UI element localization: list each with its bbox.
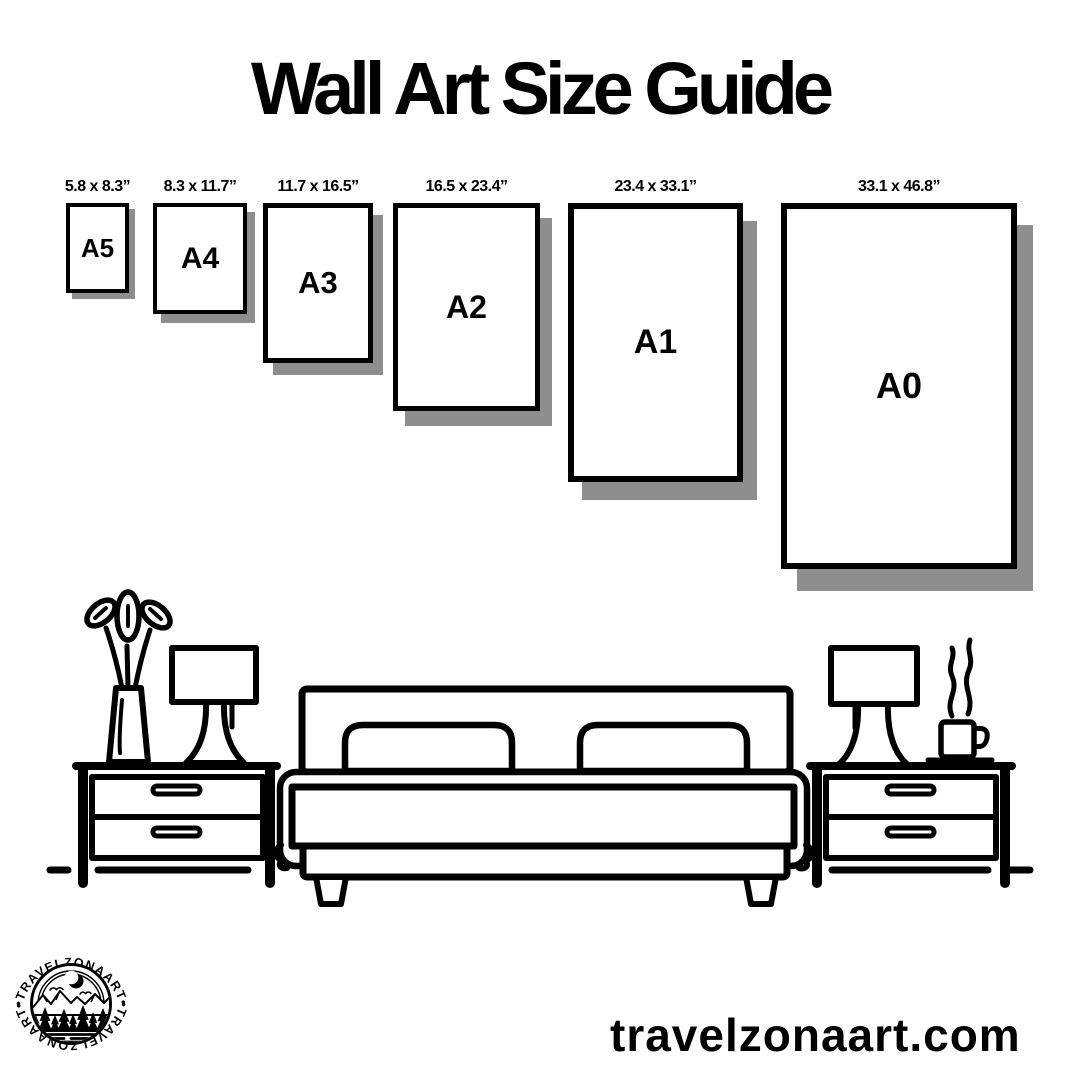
- website-url: travelzonaart.com: [610, 1008, 1021, 1062]
- paper-label-a2: A2: [446, 289, 487, 326]
- paper-a0: A0: [781, 203, 1017, 569]
- paper-label-a4: A4: [181, 242, 219, 276]
- paper-a1: A1: [568, 203, 743, 482]
- size-card-a0: 33.1 x 46.8” A0: [741, 178, 1057, 569]
- nightstand-icon: [810, 766, 1012, 883]
- table-lamp-icon: [831, 648, 917, 765]
- brand-logo: •TRAVELZONAART• •TRAVELZONAART•: [8, 940, 134, 1068]
- dimension-label-a0: 33.1 x 46.8”: [741, 178, 1057, 197]
- paper-label-a3: A3: [298, 265, 338, 301]
- pillow-icon: [345, 725, 512, 771]
- paper-label-a5: A5: [81, 233, 114, 264]
- table-lamp-icon: [172, 648, 256, 763]
- coffee-cup-icon: [928, 640, 992, 760]
- vase-plant-icon: [82, 592, 174, 762]
- pillow-icon: [580, 725, 747, 771]
- bedroom-illustration: [40, 585, 1040, 910]
- size-guide-poster: Wall Art Size Guide 5.8 x 8.3” A5 8.3 x …: [0, 0, 1080, 1080]
- paper-a2: A2: [393, 203, 540, 411]
- bed-icon: [276, 689, 812, 904]
- paper-label-a0: A0: [876, 365, 922, 407]
- page-title: Wall Art Size Guide: [0, 46, 1080, 131]
- paper-label-a1: A1: [634, 323, 677, 362]
- nightstand-icon: [76, 766, 277, 883]
